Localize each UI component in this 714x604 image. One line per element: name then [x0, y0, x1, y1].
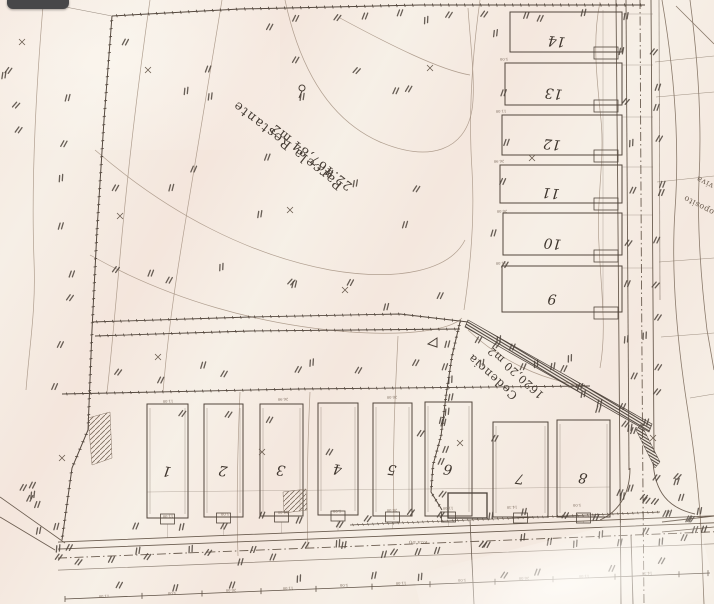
lot-parcel: 8 — [557, 420, 610, 523]
grid-cross-mark — [145, 67, 151, 73]
lot-parcel: 14 — [510, 12, 653, 59]
dimension-label: 11.00 — [282, 586, 293, 590]
dimension-label: 5.00 — [457, 578, 466, 582]
grid-cross-mark — [342, 287, 348, 293]
dimension-label: 26.90 — [277, 397, 288, 401]
parcel-restante-area: 22.467,84 m2 — [267, 121, 355, 194]
edge-text-oposito: oposito — [682, 194, 714, 217]
dimension-label: 14.30 — [641, 571, 652, 575]
lot-number: 5 — [386, 461, 397, 478]
lot-parcel: 7 — [493, 422, 548, 524]
dimension-label: 5.00 — [499, 57, 508, 61]
bottom-dimension-line — [65, 520, 710, 604]
lot-number: 8 — [577, 469, 588, 486]
grid-cross-mark — [59, 455, 65, 461]
dimension-label: 11.00 — [162, 514, 173, 518]
lot-number: 1 — [161, 462, 172, 479]
grid-cross-mark — [117, 213, 123, 219]
dimension-label: 11.00 — [495, 261, 506, 265]
lot-number: 9 — [547, 290, 557, 307]
bottom-road — [58, 511, 714, 570]
lot-number: 3 — [275, 461, 286, 478]
lot-number: 7 — [514, 470, 525, 487]
dimension-label: 5.00 — [220, 512, 229, 516]
dimension-label: 11.00 — [395, 581, 406, 585]
lot-number: 13 — [544, 84, 563, 101]
grid-cross-mark — [457, 440, 463, 446]
lot-parcel: 11 — [500, 165, 653, 210]
hatched-areas — [88, 320, 660, 513]
grid-cross-mark — [155, 354, 161, 360]
bottom-left-lines — [0, 4, 112, 550]
scanned-site-plan: 1234567814131211109Parcela Restante22.46… — [0, 0, 714, 604]
lot-number: 12 — [542, 135, 561, 152]
survey-symbols — [299, 85, 437, 347]
lot-number: 11 — [541, 184, 560, 201]
lot-grid-right: 14131211109 — [500, 10, 653, 319]
road-name-fragment: RUA DO — [408, 540, 427, 545]
lot-number: 2 — [217, 462, 229, 479]
overlay-tab — [7, 0, 69, 9]
grid-cross-mark — [650, 435, 656, 441]
dimension-label: 11.00 — [578, 574, 589, 578]
dimension-label: 11.00 — [442, 506, 453, 510]
grid-cross-mark — [287, 207, 293, 213]
dimension-label: 5.00 — [572, 503, 581, 507]
lot-number: 4 — [332, 460, 344, 477]
dimension-label: 11.00 — [162, 399, 173, 403]
lot-number: 10 — [543, 234, 562, 251]
dimension-label: 14.30 — [506, 505, 517, 509]
dimension-label: 20.00 — [225, 588, 236, 592]
dimension-label: 11.00 — [495, 109, 506, 113]
lot-parcel: 10 — [503, 213, 653, 262]
dimension-label: 11.00 — [98, 594, 109, 598]
dimension-label: 11.00 — [277, 510, 288, 514]
grid-cross-mark — [529, 155, 535, 161]
dimension-label: 20.00 — [386, 395, 397, 399]
lot-number: 6 — [442, 460, 453, 477]
lot-parcel: 9 — [502, 266, 653, 319]
dimension-label: 20.00 — [496, 209, 507, 213]
lot-grid-bottom: 12345678 — [147, 402, 610, 538]
grid-cross-mark — [427, 65, 433, 71]
lot-parcel: 13 — [505, 63, 653, 112]
dimension-label: 20.00 — [518, 576, 529, 580]
site-plan-drawing: 1234567814131211109Parcela Restante22.46… — [0, 0, 714, 604]
lot-parcel: 12 — [502, 115, 653, 162]
grid-cross-mark — [19, 39, 25, 45]
dimension-label: 20.00 — [386, 508, 397, 512]
dimension-label: 5.00 — [339, 583, 348, 587]
dimension-label: 5.00 — [167, 591, 176, 595]
lot-number: 14 — [547, 32, 566, 49]
dimension-label: 26.90 — [493, 159, 504, 163]
dimension-label: 5.00 — [332, 509, 341, 513]
